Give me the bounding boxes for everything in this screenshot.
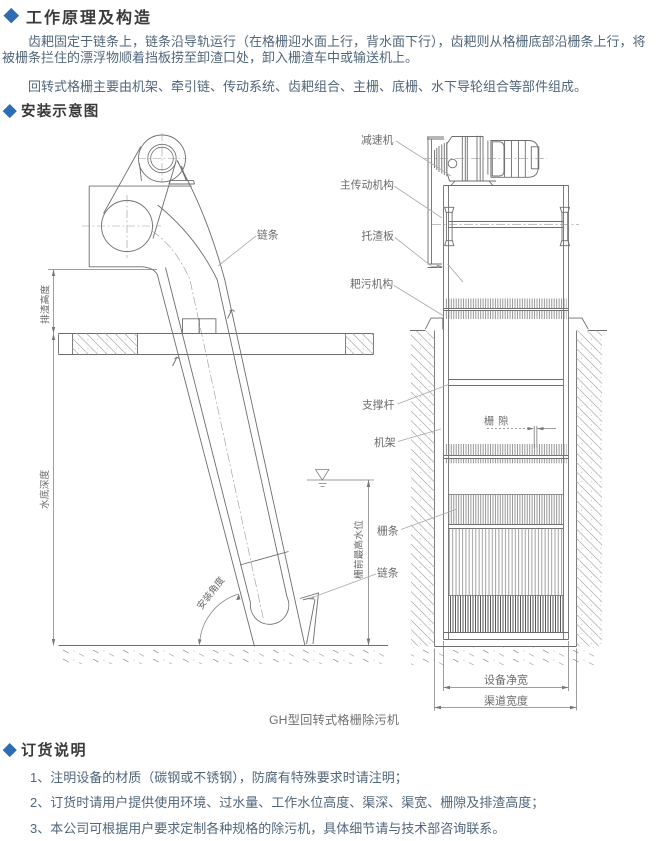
svg-text:托渣板: 托渣板: [362, 229, 395, 243]
svg-text:栅前最高水位: 栅前最高水位: [352, 520, 365, 579]
svg-text:机架: 机架: [374, 435, 396, 449]
svg-text:水底深度: 水底深度: [38, 470, 51, 509]
svg-text:链条: 链条: [377, 566, 399, 580]
svg-text:栅条: 栅条: [377, 524, 399, 538]
svg-text:主传动机构: 主传动机构: [340, 178, 394, 192]
svg-text:排渣高度: 排渣高度: [39, 285, 52, 324]
svg-text:设备净宽: 设备净宽: [484, 673, 528, 687]
svg-text:耙污机构: 耙污机构: [350, 277, 393, 291]
svg-text:链条: 链条: [257, 228, 279, 242]
svg-text:安装角度: 安装角度: [194, 574, 227, 612]
svg-text:渠道宽度: 渠道宽度: [484, 694, 528, 708]
svg-text:支撑杆: 支撑杆: [362, 398, 395, 412]
svg-text:栅隙: 栅隙: [484, 415, 512, 428]
svg-text:减速机: 减速机: [361, 133, 394, 147]
